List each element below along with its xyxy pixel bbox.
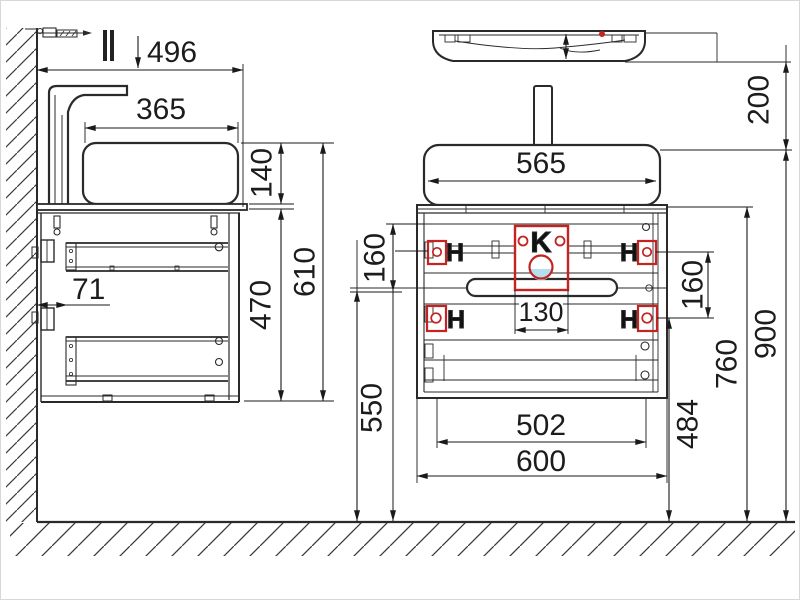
faucet-hole-marker bbox=[599, 31, 605, 37]
dim-label-365: 365 bbox=[136, 93, 186, 126]
dim-label-565: 565 bbox=[516, 147, 566, 180]
basin-side-view bbox=[83, 143, 238, 204]
dim-label-610: 610 bbox=[289, 247, 322, 297]
dim-label-760: 760 bbox=[711, 339, 744, 389]
faucet-front-view bbox=[534, 86, 552, 147]
screw-label-lower-left: H bbox=[447, 306, 465, 334]
floor-hatch bbox=[10, 522, 795, 556]
dim-label-160-right: 160 bbox=[677, 260, 710, 310]
dim-label-496: 496 bbox=[147, 36, 197, 69]
dim-label-502: 502 bbox=[516, 409, 566, 442]
dim-label-71: 71 bbox=[72, 273, 105, 306]
screw-label-upper-left: H bbox=[446, 239, 464, 267]
dim-label-470: 470 bbox=[245, 280, 278, 330]
dim-label-200: 200 bbox=[743, 75, 776, 125]
dim-label-900: 900 bbox=[750, 309, 783, 359]
drain-label: K bbox=[531, 227, 552, 259]
dim-label-140: 140 bbox=[246, 148, 279, 198]
dim-label-550: 550 bbox=[356, 383, 389, 433]
wall-hatch bbox=[6, 28, 37, 522]
vanity-technical-drawing: 496 365 140 470 610 71 bbox=[0, 0, 800, 600]
screw-label-upper-right: H bbox=[620, 239, 638, 267]
dim-label-600: 600 bbox=[516, 445, 566, 478]
dim-label-130: 130 bbox=[518, 297, 563, 327]
hanging-rail-profile bbox=[103, 30, 107, 61]
dim-label-484: 484 bbox=[672, 399, 705, 449]
drawing-page: 496 365 140 470 610 71 bbox=[0, 0, 800, 600]
dim-label-160-left: 160 bbox=[359, 233, 392, 283]
screw-label-lower-right: H bbox=[620, 306, 638, 334]
